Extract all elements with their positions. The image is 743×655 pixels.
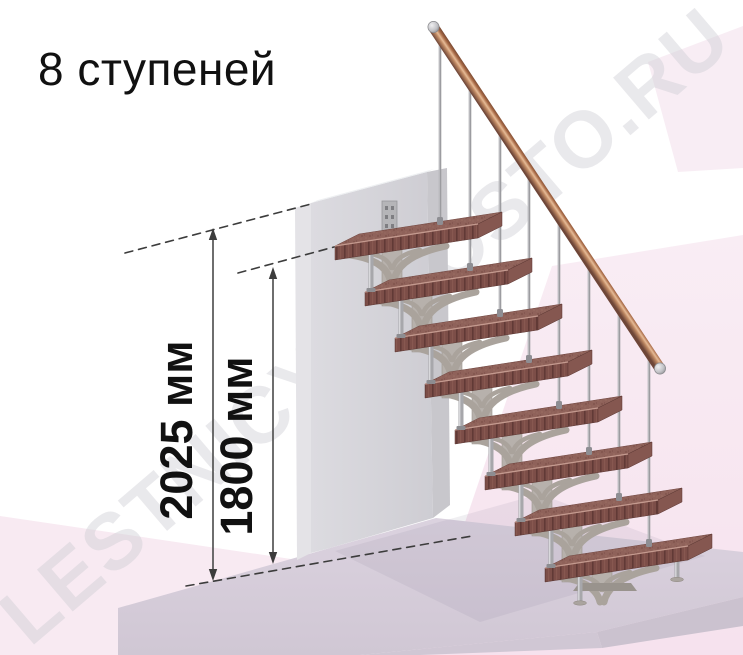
bracket-hole [391,224,394,228]
scene-svg: LESTNICY-PROSTO.RU [0,0,743,655]
end-leg-foot [671,577,684,581]
page-title: 8 ступеней [38,43,276,95]
baluster-base-connector [556,401,562,409]
dim-label-1800: 1800 мм [211,356,262,535]
spine-base-plate [573,583,637,591]
bracket-hole [385,215,388,219]
handrail-bottom-cap [654,363,665,374]
baluster-base-connector [616,493,622,501]
post-base-cap [457,426,466,430]
staircase-diagram: LESTNICY-PROSTO.RU [0,0,743,655]
bracket-hole [391,215,394,219]
post-base-cap [397,334,406,338]
baluster-base-connector [437,217,443,225]
post-base-cap [427,380,436,384]
dim-label-2025: 2025 мм [151,340,202,519]
baluster-base-connector [646,539,652,547]
baluster-base-connector [497,309,503,317]
bracket-hole [385,224,388,228]
bracket-hole [385,206,388,210]
extension-line-top [125,204,311,253]
handrail-top-cap [428,21,439,32]
bracket-hole [391,206,394,210]
baluster-base-connector [467,263,473,271]
post-base-cap [517,518,526,522]
front-leg-foot [574,601,587,605]
baluster-base-connector [526,355,532,363]
post-base-cap [367,288,376,292]
post-base-cap [547,564,556,568]
baluster-base-connector [586,447,592,455]
arrowhead [269,267,277,279]
post-base-cap [487,472,496,476]
